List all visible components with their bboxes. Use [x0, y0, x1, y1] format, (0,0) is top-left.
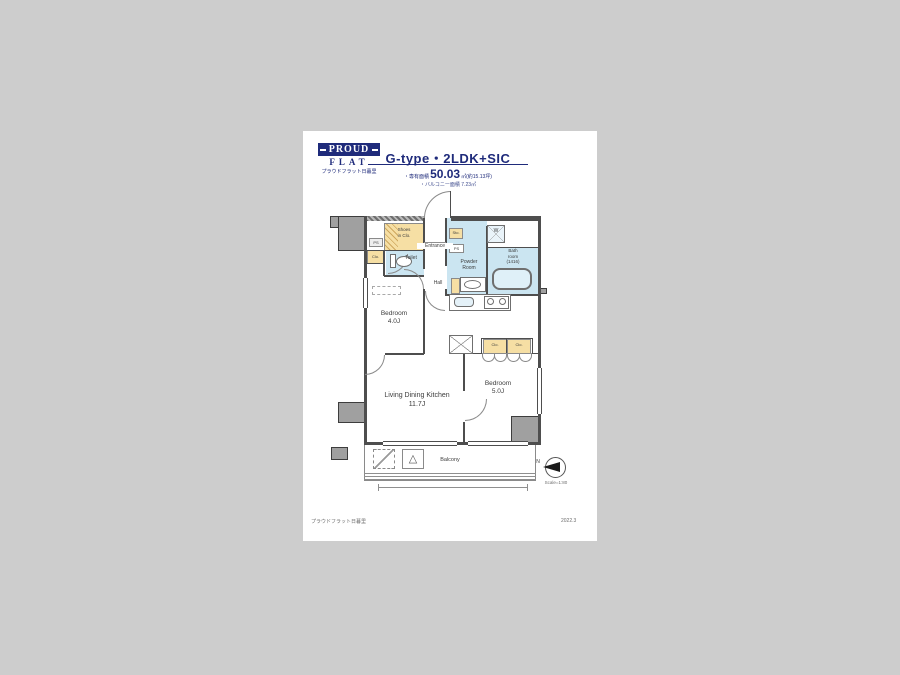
footer-date: 2022.3 — [561, 518, 576, 524]
bedroom2-door-arc — [465, 399, 487, 421]
storage-label: Sto. — [449, 230, 463, 235]
ldk-label: Living Dining Kitchen11.7J — [379, 392, 455, 410]
washer-label: W — [489, 228, 503, 234]
bedroom2-side-window — [537, 368, 542, 414]
closet-fold-door — [494, 353, 507, 362]
hall-label: Hall — [429, 280, 447, 286]
toilet-label: Toilet — [398, 255, 424, 261]
floorplan-page: PROUD FLAT プラウドフラット日暮里 G-type・2LDK+SIC ・… — [0, 0, 900, 675]
closet-b-label: Clo. — [507, 342, 531, 347]
counter-hatch-icon — [449, 335, 473, 354]
floorplan: PS PS Shoesin Clo. Sto. Clo. Entrance To… — [303, 131, 597, 541]
closet-a-label: Clo. — [483, 342, 507, 347]
vanity-basin-icon — [464, 280, 481, 289]
ceiling-note-box — [372, 286, 401, 295]
closet-fold-door — [519, 353, 532, 362]
bedroom1-side-window — [363, 278, 368, 308]
hall-ldk-door-arc — [425, 291, 445, 311]
north-arrow-icon — [543, 462, 560, 472]
plan-sheet: PROUD FLAT プラウドフラット日暮里 G-type・2LDK+SIC ・… — [303, 131, 597, 541]
burner-icon — [487, 298, 494, 305]
closet-left-label: Clo. — [367, 254, 384, 259]
balcony-label: Balcony — [435, 457, 465, 464]
bedroom1-label: Bedroom4.0J — [374, 310, 414, 326]
linen-cabinet — [451, 278, 460, 294]
bathroom-label: Bathroom(1416) — [499, 248, 527, 265]
powder-room-label: PowderRoom — [454, 259, 484, 272]
footer-property-name: プラウドフラット日暮里 — [311, 518, 366, 525]
entrance-door-arc — [424, 191, 451, 218]
ldk-bedroom1-door-arc — [365, 355, 385, 375]
bathtub-icon — [492, 268, 532, 290]
hatch-note-icon — [373, 449, 395, 469]
pipe-space-left: PS — [369, 238, 383, 247]
north-label: N — [533, 459, 543, 465]
burner-icon — [499, 298, 506, 305]
shoes-closet-label: Shoesin Clo. — [391, 227, 417, 238]
kitchen-sink-icon — [454, 297, 474, 307]
scale-label: Scale=1:80 — [531, 480, 581, 486]
bedroom2-label: Bedroom5.0J — [476, 380, 520, 396]
escape-hatch-icon: △ — [402, 449, 424, 469]
entrance-label: Entrance — [417, 243, 453, 249]
dimension-line — [378, 487, 528, 488]
